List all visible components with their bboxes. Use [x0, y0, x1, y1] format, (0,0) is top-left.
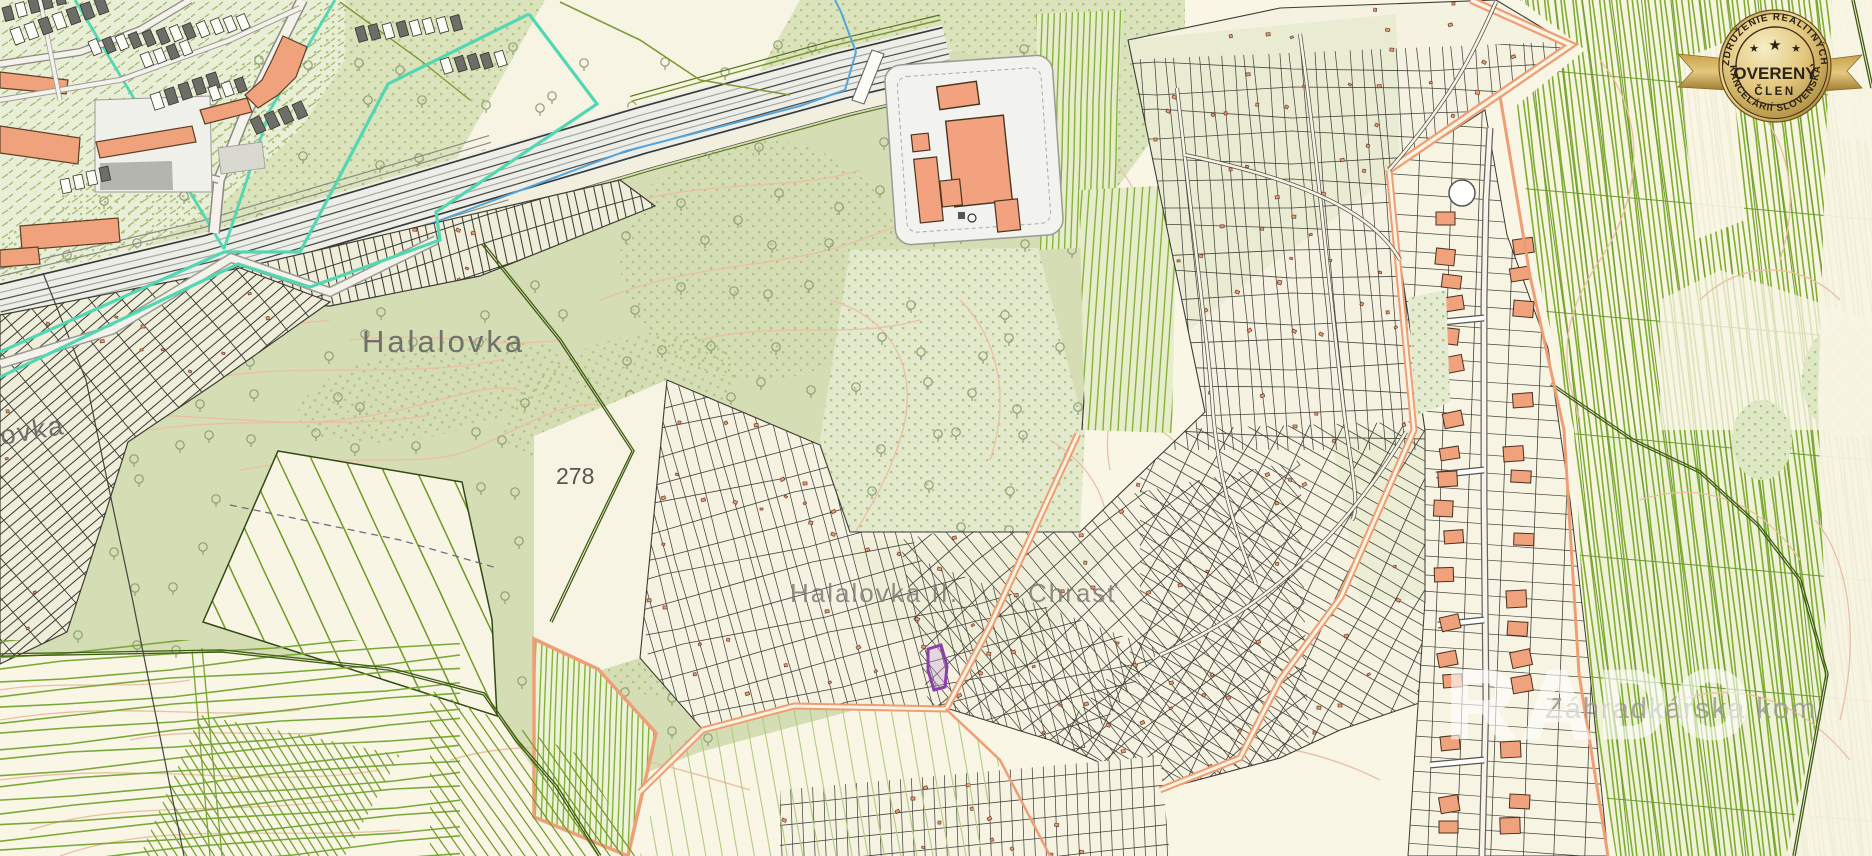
svg-text:Halalovka II.: Halalovka II.	[790, 578, 959, 608]
svg-text:★: ★	[1749, 43, 1759, 55]
svg-text:278: 278	[556, 463, 594, 489]
svg-text:ČLEN: ČLEN	[1754, 85, 1795, 98]
svg-text:OVERENÝ: OVERENÝ	[1733, 64, 1817, 83]
svg-text:RADO: RADO	[1446, 650, 1756, 759]
svg-text:Halalovka: Halalovka	[362, 324, 525, 359]
svg-text:Chrasť: Chrasť	[1028, 578, 1119, 608]
svg-text:★: ★	[1791, 43, 1801, 55]
svg-text:★: ★	[1768, 37, 1781, 54]
